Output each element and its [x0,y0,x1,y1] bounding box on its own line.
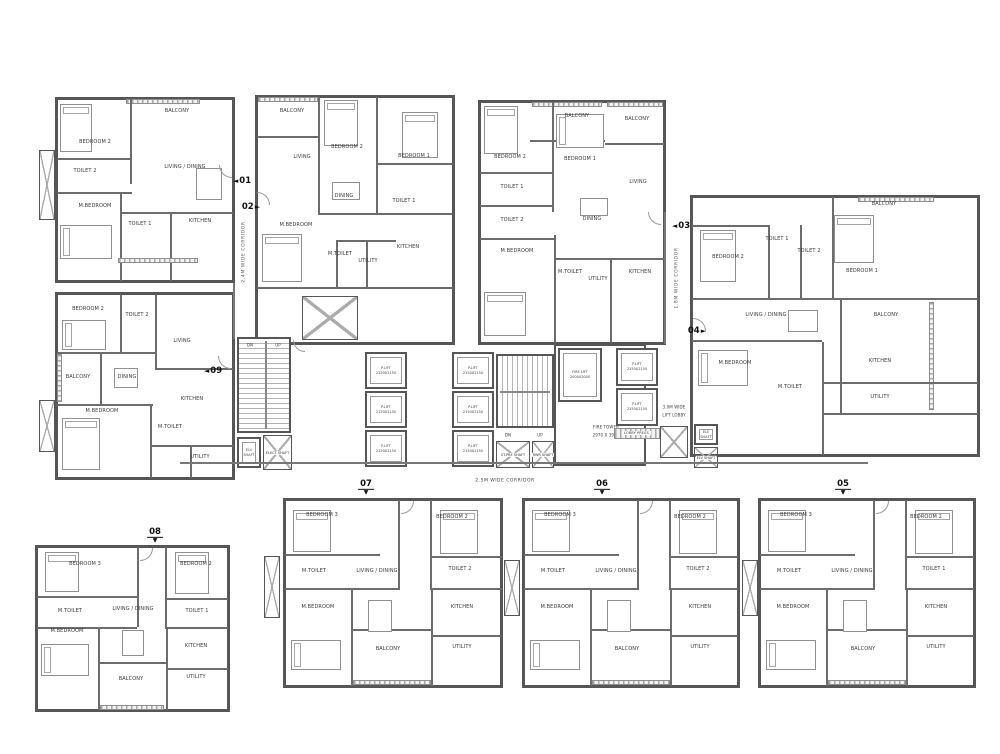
dining-table [122,630,144,656]
wall-segment [318,97,320,215]
elv-shaft-south: ELV SHAFT [694,447,718,468]
room-label: UTILITY [926,645,945,651]
bed-pillow [703,233,733,240]
wall-segment [480,238,554,240]
dining-table [843,600,867,632]
stair-divider [265,341,267,429]
wall-segment [605,143,664,145]
room-label: KITCHEN [689,605,711,611]
bed-pillow [327,103,355,110]
room-label: BEDROOM 2 [910,515,942,521]
room-label: TOILET 2 [686,567,709,573]
wall-segment [692,340,822,342]
bed-pillow [65,323,72,347]
balcony-railing [100,705,164,710]
room-label: LIVING [293,155,310,161]
bed-furniture [175,552,209,594]
room-label: BEDROOM 2 [674,515,706,521]
stair-divider [500,391,550,393]
room-label: KITCHEN [181,397,203,403]
wall-segment [524,554,619,556]
room-label: TOILET 1 [500,185,523,191]
room-label: BEDROOM 3 [69,562,101,568]
corridor-label-left: 2.4M WIDE CORRIDOR [242,221,247,282]
room-label: TOILET 1 [392,199,415,205]
room-label: M.BEDROOM [280,223,313,229]
room-label: BALCONY [280,109,305,115]
bed-furniture [698,350,748,386]
wall-segment [376,97,378,215]
room-label: DINING [118,375,137,381]
room-label: M.TOILET [302,569,326,575]
stair-dn-label: DN [247,344,253,349]
wall-segment [669,588,738,590]
wall-segment [170,214,172,281]
bed-pillow [265,237,299,244]
wall-segment [430,556,502,558]
room-label: DINING [335,194,354,200]
room-label: BEDROOM 1 [398,154,430,160]
wall-segment [669,556,738,558]
shaft-hatch [660,426,688,458]
room-label: TOILET 1 [128,222,151,228]
wall-segment [822,342,824,455]
wall-segment [257,136,319,138]
bed-pillow [63,228,70,256]
dining-table [607,600,631,632]
wall-segment [378,163,453,165]
bed-furniture [484,106,518,154]
room-label: UTILITY [690,645,709,651]
bed-pillow [487,109,515,116]
wall-segment [826,629,908,631]
wall-segment [130,99,132,184]
room-label: TOILET 1 [185,609,208,615]
dining-table [368,600,392,632]
wall-segment [98,662,166,664]
lift-lobby-label-2: LIFT LOBBY [662,414,685,419]
lift-size: 2150X2150 [376,371,396,376]
lift-size: 2150X2150 [463,449,483,454]
room-label: BEDROOM 2 [712,255,744,261]
door-swing [293,340,305,352]
wall-segment [760,554,855,556]
passenger-lift: P.LIFT2150X2150 [452,352,494,389]
wall-segment [800,225,802,298]
room-label: BEDROOM 3 [306,513,338,519]
wall-segment [590,590,592,686]
wall-segment [120,194,122,281]
st-pre-shaft-label: ST.PRE SHAFT [500,452,526,456]
dining-table [788,310,818,332]
wall-segment [37,596,137,598]
entry-arrow-icon: ▼ [600,490,605,496]
wall-segment [906,635,974,637]
room-label: M.BEDROOM [501,249,534,255]
room-label: LIVING / DINING [745,313,786,319]
wall-segment [552,102,554,212]
shaft-hatch [264,556,280,618]
room-label: M.BEDROOM [777,605,810,611]
wall-segment [57,404,153,406]
room-label: KITCHEN [185,644,207,650]
room-label: BALCONY [376,647,401,653]
room-label: TOILET 2 [797,249,820,255]
bed-pillow [63,107,89,114]
room-label: UTILITY [870,395,889,401]
entry-arrow-icon: ▼ [841,490,846,496]
stair-up-label: UP [275,344,281,349]
ele-shaft-label: ELE SHAFT [700,430,712,440]
room-label: LIVING / DINING [112,607,153,613]
unit-05-marker: 05▼ [835,480,851,496]
wall-segment [524,588,638,590]
wall-segment [166,668,228,670]
wall-segment [98,627,100,710]
room-label: BEDROOM 2 [79,140,111,146]
room-label: BALCONY [874,313,899,319]
room-label: M.BEDROOM [719,361,752,367]
room-label: M.BEDROOM [51,629,84,635]
wall-segment [285,554,380,556]
wall-segment [120,294,122,352]
wall-segment [351,629,433,631]
bed-pillow [294,643,301,667]
wall-segment [824,413,978,415]
balcony-railing [118,258,198,263]
room-label: M.TOILET [777,569,801,575]
unit-01-marker: ◄01 [233,176,251,186]
entry-arrow-icon: ▼ [153,538,158,544]
fire-lift-size: 2000X2000 [570,375,590,380]
wall-segment [669,500,671,590]
entry-arrow-icon: ◄ [672,223,677,230]
wall-segment [692,225,768,227]
shaft-hatch [39,400,55,452]
elect-shaft-label: ELECT SHAFT [265,450,290,454]
corridor-wall [664,212,666,344]
balcony-railing [258,97,318,102]
room-label: M.TOILET [541,569,565,575]
wall-segment [670,590,672,686]
shaft-hatch [39,150,55,220]
balcony-railing [532,102,602,107]
wall-segment [480,172,554,174]
bed-pillow [405,115,435,122]
staircase-central [496,354,554,428]
room-label: BEDROOM 3 [544,513,576,519]
ele-shaft: ELE SHAFT [694,424,718,445]
room-label: BEDROOM 3 [780,513,812,519]
room-label: UTILITY [452,645,471,651]
room-label: BALCONY [119,677,144,683]
bed-pillow [65,421,97,428]
wall-segment [760,588,874,590]
room-label: M.TOILET [158,425,182,431]
wall-segment [905,556,974,558]
wall-segment [430,500,432,590]
room-label: BEDROOM 1 [564,157,596,163]
bed-furniture [402,112,438,158]
wall-segment [165,547,167,627]
entry-arrow-icon: ◄ [233,178,238,185]
passenger-lift: P.LIFT2150X2150 [616,388,658,426]
shaft-hatch [302,296,358,340]
room-label: TOILET 1 [765,237,788,243]
elv-shaft-label: ELV SHAFT [243,448,255,458]
lift-size: 2150X2150 [627,367,647,372]
room-label: DINING [583,217,602,223]
room-label: UTILITY [186,675,205,681]
wall-segment [57,352,155,354]
balcony-railing [929,302,934,410]
bed-furniture [530,640,580,670]
lift-size: 2150X2150 [376,449,396,454]
passenger-lift: P.LIFT2150X2150 [452,391,494,428]
room-label: KITCHEN [451,605,473,611]
wall-segment [137,547,139,627]
room-label: BALCONY [66,375,91,381]
room-label: LIVING / DINING [164,165,205,171]
room-label: BEDROOM 2 [72,307,104,313]
lift-size: 2150X2150 [463,371,483,376]
room-label: KITCHEN [397,245,419,251]
room-label: M.BEDROOM [79,204,112,210]
bed-furniture [41,644,89,676]
wall-segment [165,627,228,629]
lift-size: 2150X2150 [463,410,483,415]
dining-table [196,168,222,200]
bed-furniture [766,640,816,670]
stair-dn-label: DN [505,434,511,439]
room-label: M.TOILET [558,270,582,276]
room-label: BALCONY [851,647,876,653]
balcony-railing [592,680,670,685]
room-label: TOILET 1 [922,567,945,573]
bed-pillow [769,643,776,667]
balcony-railing [57,354,62,402]
room-label: LIVING / DINING [595,569,636,575]
floor-plan-canvas: BEDROOM 2 BALCONY LIVING / DINING TOILET… [0,0,1000,754]
bed-pillow [559,117,566,145]
room-label: LIVING / DINING [831,569,872,575]
corridor-label-right: 1.8M WIDE CORRIDOR [675,247,680,308]
shaft-hatch [742,560,758,616]
bed-furniture [62,418,100,470]
room-label: KITCHEN [869,359,891,365]
corridor-wall [233,283,235,339]
room-label: M.TOILET [328,252,352,258]
room-label: BALCONY [165,109,190,115]
elect-shaft: ELECT SHAFT [263,435,292,470]
unit-03-marker: ◄03 [672,221,690,231]
room-label: BALCONY [625,117,650,123]
room-label: M.TOILET [778,385,802,391]
bed-furniture [484,292,526,336]
wall-segment [122,212,233,214]
room-label: BEDROOM 2 [180,562,212,568]
bed-furniture [291,640,341,670]
wall-segment [610,260,612,343]
room-label: UTILITY [358,259,377,265]
wall-segment [670,635,738,637]
wall-segment [257,287,453,289]
bed-furniture [324,100,358,146]
wall-segment [430,588,502,590]
bed-furniture [834,215,874,263]
entry-arrow-icon: ◄ [204,368,209,375]
bed-furniture [62,320,106,350]
lift-size: 2150X2150 [627,407,647,412]
room-label: M.TOILET [58,609,82,615]
passenger-lift: P.LIFT2150X2150 [365,352,407,389]
passenger-lift: P.LIFT2150X2150 [616,348,658,386]
wall-segment [100,354,102,404]
room-label: M.BEDROOM [541,605,574,611]
room-label: LIVING [629,180,646,186]
wall-segment [692,298,978,300]
wall-segment [905,500,907,590]
lobby-press-label: LOBBY PRESS. [623,431,651,435]
wall-segment [285,588,399,590]
unit-07-marker: 07▼ [358,480,374,496]
wall-segment [336,240,338,287]
bed-pillow [487,295,523,302]
stair-up-label: UP [537,434,543,439]
room-label: BALCONY [565,114,590,120]
balcony-railing [353,680,431,685]
wall-segment [431,590,433,686]
unit-08-marker: 08▼ [147,528,163,544]
passenger-lift: P.LIFT2150X2150 [365,391,407,428]
wall-segment [480,205,554,207]
wall-segment [905,588,974,590]
bed-pillow [837,218,871,225]
room-label: BEDROOM 2 [331,145,363,151]
wall-segment [840,300,842,413]
room-label: LIVING / DINING [356,569,397,575]
room-label: TOILET 2 [73,169,96,175]
wall-segment [906,590,908,686]
room-label: BEDROOM 1 [846,269,878,275]
room-label: TOILET 2 [500,218,523,224]
entry-arrow-icon: ▼ [364,490,369,496]
wall-segment [590,629,672,631]
wall-segment [155,294,157,368]
wall-segment [873,500,875,590]
room-label: KITCHEN [189,219,211,225]
room-label: TOILET 2 [448,567,471,573]
room-label: BALCONY [615,647,640,653]
wall-segment [824,382,978,384]
room-label: UTILITY [588,277,607,283]
wall-segment [431,635,501,637]
room-label: BEDROOM 2 [494,155,526,161]
room-label: KITCHEN [629,270,651,276]
wall-segment [150,406,152,478]
staircase-west [237,337,291,433]
wall-segment [57,158,132,160]
room-label: TOILET 2 [125,313,148,319]
shaft-hatch [504,560,520,616]
room-label: KITCHEN [925,605,947,611]
fire-lift: FIRE LIFT2000X2000 [558,348,602,402]
wall-segment [336,240,396,242]
wall-segment [637,500,639,590]
room-label: BEDROOM 2 [436,515,468,521]
wall-segment [165,598,228,600]
room-label: M.BEDROOM [302,605,335,611]
unit-06-marker: 06▼ [594,480,610,496]
bed-pillow [701,353,708,383]
room-label: BALCONY [872,202,897,208]
balcony-railing [828,680,906,685]
unit-09-marker: ◄09 [204,366,222,376]
bed-pillow [44,647,51,673]
room-label: UTILITY [190,455,209,461]
balcony-railing [126,99,200,104]
rwr-shaft-label: RWR SHAFT [532,452,555,456]
bed-pillow [533,643,540,667]
dining-table [580,198,608,216]
bed-furniture [60,225,112,259]
lift-lobby-label-1: 3.0M WIDE [663,406,686,411]
corridor-label-bottom: 2.5M WIDE CORRIDOR [475,478,534,483]
elv-shaft-label: ELV SHAFT [696,455,717,459]
bed-furniture [45,552,79,592]
wall-segment [398,500,400,590]
wall-segment [318,213,453,215]
room-label: M.BEDROOM [86,409,119,415]
balcony-railing [607,102,663,107]
wall-segment [351,590,353,686]
room-label: LIVING [173,339,190,345]
wall-segment [554,235,556,343]
lift-size: 2150X2150 [376,410,396,415]
corridor-wall [180,462,868,464]
wall-segment [826,590,828,686]
bed-furniture [262,234,302,282]
